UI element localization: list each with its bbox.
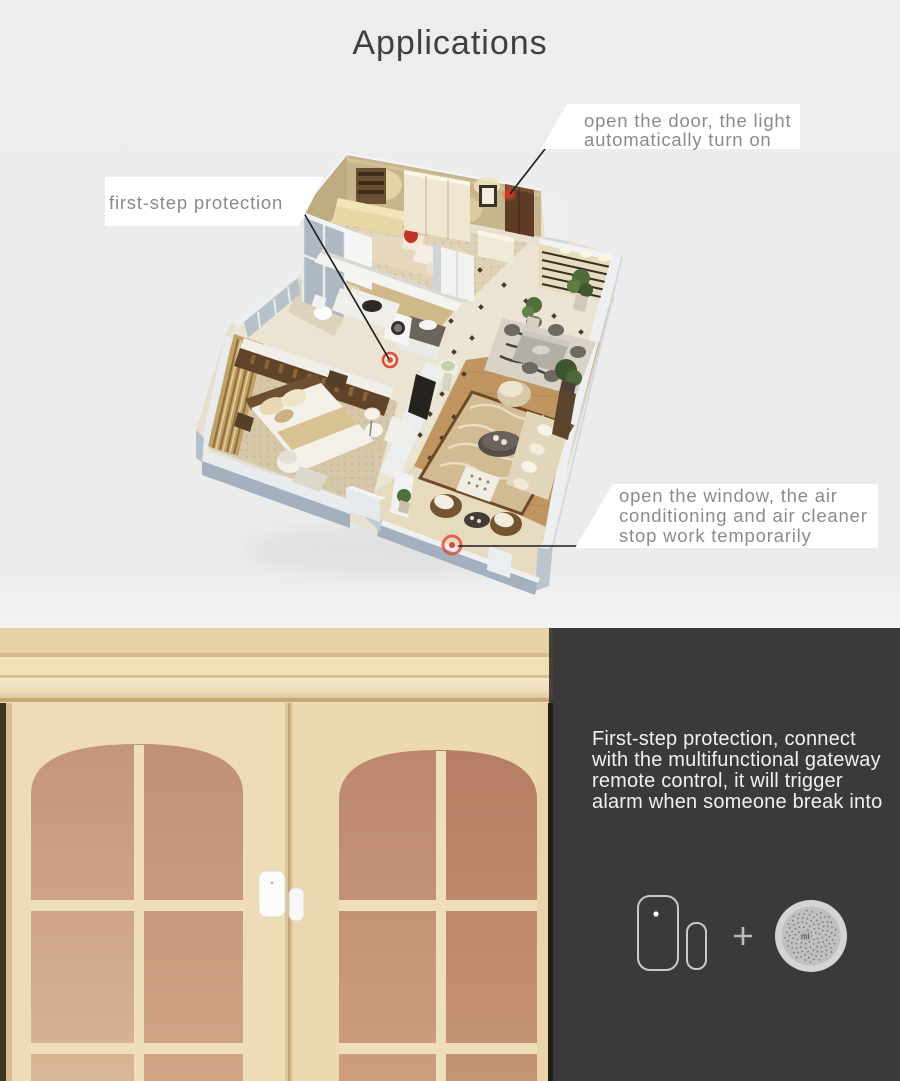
svg-text:open the window, the air: open the window, the air (619, 485, 838, 506)
svg-text:with the multifunctional gatew: with the multifunctional gateway (591, 749, 881, 771)
svg-text:remote control, it will trigge: remote control, it will trigger (592, 770, 843, 792)
svg-text:stop work temporarily: stop work temporarily (619, 525, 812, 546)
svg-text:conditioning and air cleaner: conditioning and air cleaner (619, 505, 868, 526)
svg-text:mi: mi (801, 932, 810, 941)
svg-text:First-step protection, connect: First-step protection, connect (592, 728, 856, 750)
svg-text:open the door, the light: open the door, the light (584, 110, 791, 131)
svg-text:alarm when someone break into: alarm when someone break into (592, 791, 882, 813)
svg-text:automatically turn on: automatically turn on (584, 129, 772, 150)
svg-text:first-step protection: first-step protection (109, 192, 283, 213)
